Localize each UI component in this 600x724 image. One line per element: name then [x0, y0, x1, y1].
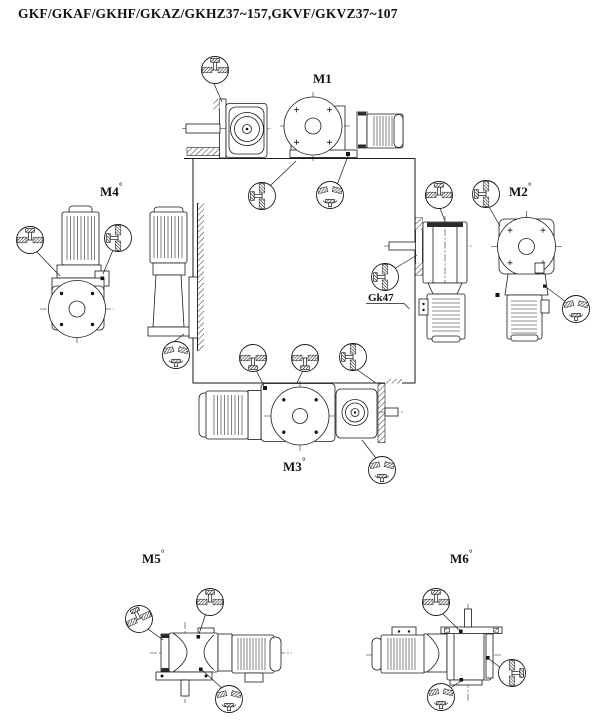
- m4-label-mark: °: [119, 181, 123, 191]
- m1-label: M1: [313, 71, 332, 86]
- gk47-label: Gk47: [368, 292, 394, 304]
- m2-oil-level-plug-icon: [473, 181, 500, 208]
- m2-label: M2: [509, 184, 528, 199]
- m4-label: M4: [100, 184, 119, 199]
- m4-oil-drain-plug-icon: [163, 342, 190, 369]
- m5-label: M5: [142, 551, 161, 566]
- m5-group: M5 °: [121, 548, 292, 713]
- m2-unit-front-view: [491, 211, 562, 341]
- m4-unit-side-view: [148, 203, 204, 351]
- m3-group: M3 °: [199, 344, 404, 484]
- m5-label-mark: °: [161, 548, 165, 558]
- m3-oil-fill-plug-icon-2: [292, 345, 319, 372]
- m3-oil-fill-plug-icon: [240, 345, 267, 372]
- m6-label: M6: [450, 551, 469, 566]
- m1-oil-level-plug-icon: [249, 183, 276, 210]
- m4-oil-level-plug-icon: [105, 225, 132, 252]
- m3-unit-front-view: [199, 381, 338, 451]
- m6-label-mark: °: [469, 548, 473, 558]
- m3-unit-side-view: [336, 379, 404, 443]
- m3-label: M3: [283, 459, 302, 474]
- m3-label-mark: °: [302, 456, 306, 466]
- m4-group: M4 °: [17, 181, 205, 369]
- gk47-oil-level-plug-icon: [372, 264, 399, 291]
- gk47-callout: Gk47: [366, 255, 417, 309]
- m5-oil-drain-plug-icon: [216, 686, 243, 713]
- m4-unit-front-view: [40, 206, 114, 344]
- m2-label-mark: °: [528, 181, 532, 191]
- m6-oil-drain-plug-icon: [428, 684, 455, 711]
- m5-breather-plug-top-icon: [197, 589, 224, 616]
- m1-unit-front-view: [280, 92, 403, 161]
- m1-group: M1: [182, 57, 403, 210]
- m3-oil-level-plug-icon: [340, 344, 367, 371]
- m3-oil-drain-plug-icon: [369, 457, 396, 484]
- m6-oil-level-plug-icon: [499, 660, 526, 687]
- m4-breather-plug-icon: [17, 227, 44, 254]
- m1-oil-drain-plug-icon: [317, 182, 344, 209]
- mounting-position-diagram-page: GKF/GKAF/GKHF/GKAZ/GKHZ37~157,GKVF/GKVZ3…: [0, 0, 600, 724]
- m6-group: M6 °: [366, 548, 526, 711]
- m1-unit-side-view: [182, 99, 272, 158]
- m2-breather-plug-icon: [426, 182, 453, 209]
- mounting-position-diagram: M1: [0, 0, 600, 724]
- m6-breather-plug-icon: [423, 589, 450, 616]
- m2-oil-drain-plug-icon: [563, 296, 590, 323]
- m1-breather-plug-icon: [202, 57, 229, 84]
